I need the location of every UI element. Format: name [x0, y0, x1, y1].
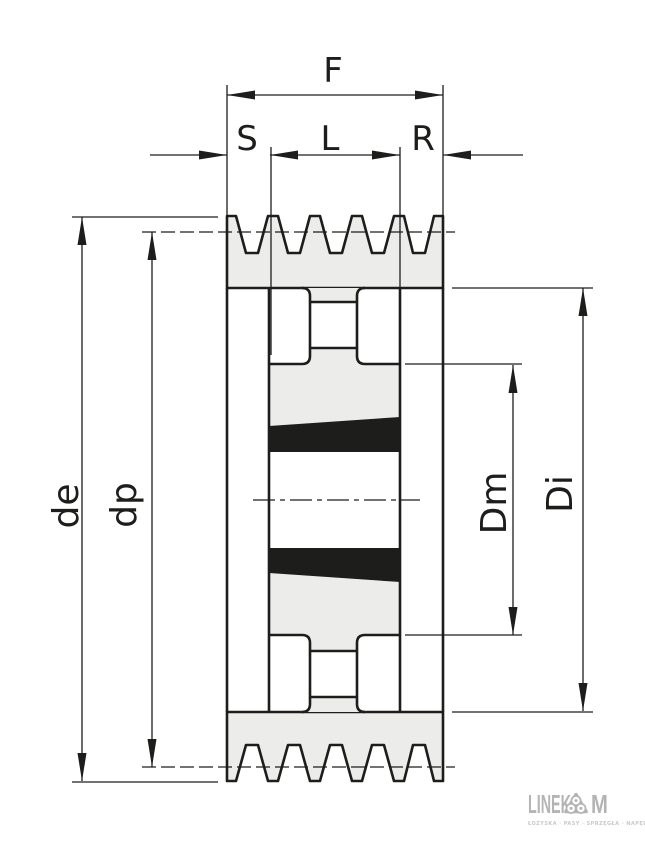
rim-bottom-grooves [227, 712, 443, 781]
label-de: de [46, 484, 87, 529]
hub-upper-fill [269, 348, 400, 426]
pulley-cross-section [227, 216, 443, 781]
rim-top-grooves [227, 216, 443, 288]
pulley-technical-drawing: F S L R de dp Dm Di LINEK M ŁOŻYSKA · PA… [0, 0, 645, 843]
logo: LINEK M ŁOŻYSKA · PASY · SPRZĘGŁA · NAPĘ… [527, 791, 632, 833]
label-R: R [411, 119, 435, 159]
label-Dm: Dm [474, 472, 515, 535]
hub-lower-fill [269, 573, 400, 651]
label-dp: dp [104, 482, 145, 528]
label-F: F [323, 51, 343, 91]
drawing-canvas: F S L R de dp Dm Di [0, 0, 645, 843]
label-L: L [321, 119, 340, 159]
label-Di: Di [540, 475, 581, 513]
logo-wordmark-right: M [591, 791, 608, 817]
label-S: S [236, 119, 258, 159]
logo-tagline: ŁOŻYSKA · PASY · SPRZĘGŁA · NAPĘDY [528, 821, 645, 827]
bearing-rollers-icon [563, 791, 589, 821]
